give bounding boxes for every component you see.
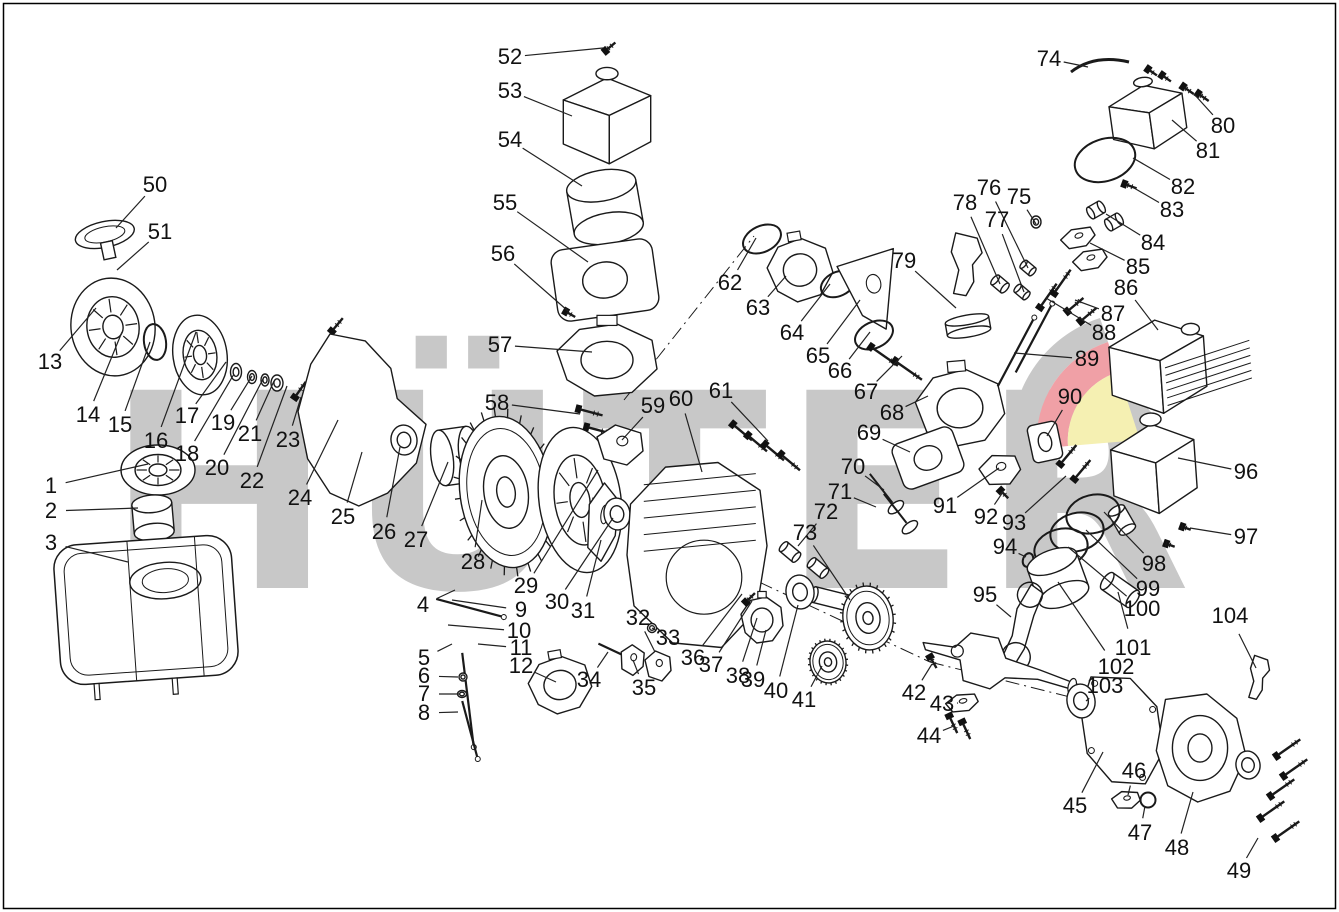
part-label-42: 42 [902, 680, 926, 705]
part-label-77: 77 [985, 207, 1009, 232]
part-label-70: 70 [841, 454, 865, 479]
part-label-83: 83 [1160, 197, 1184, 222]
part-label-51: 51 [148, 219, 172, 244]
part-label-66: 66 [828, 358, 852, 383]
exploded-parts-diagram-page: HÜTER 1234567891011121314151617181920212… [0, 0, 1339, 912]
part-label-28: 28 [461, 549, 485, 574]
part-label-25: 25 [331, 504, 355, 529]
part-label-27: 27 [404, 527, 428, 552]
part-label-94: 94 [993, 534, 1017, 559]
part-label-39: 39 [741, 667, 765, 692]
part-label-35: 35 [632, 675, 656, 700]
part-label-15: 15 [108, 412, 132, 437]
part-label-34: 34 [577, 667, 601, 692]
part-label-72: 72 [814, 499, 838, 524]
part-label-21: 21 [238, 421, 262, 446]
part-label-64: 64 [780, 320, 804, 345]
part-label-8: 8 [418, 700, 430, 725]
part-label-49: 49 [1227, 858, 1251, 883]
part-label-61: 61 [709, 378, 733, 403]
leader-line-6 [439, 676, 458, 677]
part-label-31: 31 [571, 598, 595, 623]
part-label-57: 57 [488, 332, 512, 357]
part-label-44: 44 [917, 723, 941, 748]
part-label-46: 46 [1122, 758, 1146, 783]
part-label-12: 12 [509, 653, 533, 678]
part-label-52: 52 [498, 44, 522, 69]
part-label-19: 19 [211, 410, 235, 435]
part-label-95: 95 [973, 582, 997, 607]
part-label-98: 98 [1142, 551, 1166, 576]
part-label-50: 50 [143, 172, 167, 197]
part-label-103: 103 [1087, 673, 1124, 698]
part-label-16: 16 [144, 428, 168, 453]
part-label-37: 37 [699, 652, 723, 677]
part-label-2: 2 [45, 498, 57, 523]
part-label-60: 60 [669, 386, 693, 411]
part-label-43: 43 [930, 691, 954, 716]
part-label-73: 73 [793, 520, 817, 545]
part-label-53: 53 [498, 78, 522, 103]
part-label-22: 22 [240, 468, 264, 493]
part-label-47: 47 [1128, 820, 1152, 845]
part-label-55: 55 [493, 190, 517, 215]
part-label-92: 92 [974, 504, 998, 529]
part-label-90: 90 [1058, 384, 1082, 409]
part-label-91: 91 [933, 493, 957, 518]
part-label-48: 48 [1165, 835, 1189, 860]
part-label-68: 68 [880, 400, 904, 425]
part-label-74: 74 [1037, 46, 1061, 71]
part-label-67: 67 [854, 379, 878, 404]
part-label-13: 13 [38, 349, 62, 374]
part-label-97: 97 [1234, 524, 1258, 549]
part-label-65: 65 [806, 343, 830, 368]
part-label-81: 81 [1196, 138, 1220, 163]
leader-line-8 [439, 712, 458, 713]
part-label-41: 41 [792, 687, 816, 712]
part-label-33: 33 [656, 625, 680, 650]
part-label-93: 93 [1002, 510, 1026, 535]
part-label-63: 63 [746, 295, 770, 320]
part-label-58: 58 [485, 390, 509, 415]
part-spring-6 [459, 673, 467, 681]
part-label-59: 59 [641, 393, 665, 418]
part-label-84: 84 [1141, 230, 1165, 255]
part-label-18: 18 [175, 441, 199, 466]
part-label-26: 26 [372, 519, 396, 544]
part-label-69: 69 [857, 420, 881, 445]
part-label-14: 14 [76, 402, 100, 427]
part-fuel-filter-cup [131, 493, 175, 542]
part-label-23: 23 [276, 427, 300, 452]
part-label-4: 4 [417, 592, 429, 617]
part-label-86: 86 [1114, 275, 1138, 300]
part-label-56: 56 [491, 241, 515, 266]
part-label-45: 45 [1063, 793, 1087, 818]
part-label-20: 20 [205, 455, 229, 480]
part-label-88: 88 [1092, 320, 1116, 345]
part-label-54: 54 [498, 127, 522, 152]
diagram-canvas: HÜTER 1234567891011121314151617181920212… [0, 0, 1339, 912]
part-label-24: 24 [288, 485, 312, 510]
part-label-1: 1 [45, 473, 57, 498]
part-label-30: 30 [545, 589, 569, 614]
part-label-89: 89 [1075, 346, 1099, 371]
part-label-82: 82 [1171, 174, 1195, 199]
part-label-32: 32 [626, 605, 650, 630]
part-label-62: 62 [718, 270, 742, 295]
part-label-40: 40 [764, 678, 788, 703]
part-label-80: 80 [1211, 113, 1235, 138]
part-label-78: 78 [953, 190, 977, 215]
part-label-100: 100 [1124, 596, 1161, 621]
part-label-3: 3 [45, 530, 57, 555]
part-label-17: 17 [175, 403, 199, 428]
part-label-76: 76 [977, 175, 1001, 200]
part-label-29: 29 [514, 573, 538, 598]
part-label-96: 96 [1234, 459, 1258, 484]
part-label-75: 75 [1007, 184, 1031, 209]
part-label-104: 104 [1212, 603, 1249, 628]
part-label-79: 79 [892, 248, 916, 273]
